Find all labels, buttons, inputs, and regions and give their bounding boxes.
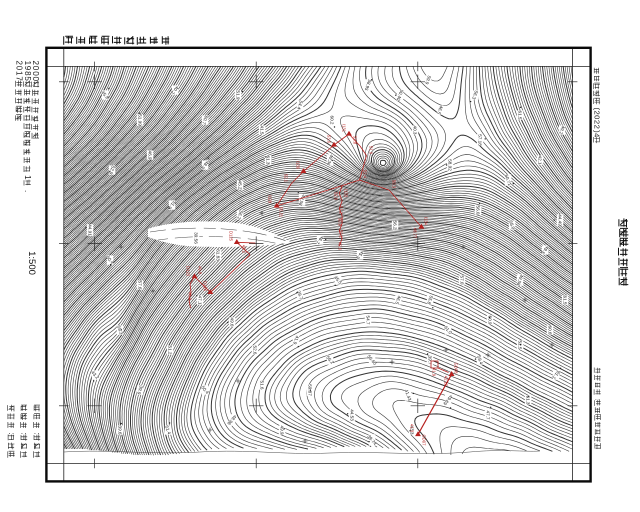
svg-text:61.83: 61.83 [216, 249, 221, 261]
svg-text:47.7: 47.7 [486, 411, 491, 420]
svg-text:49.6: 49.6 [230, 318, 235, 327]
svg-text::: : [20, 432, 29, 434]
svg-text:41.5: 41.5 [260, 126, 265, 135]
svg-text:4: 4 [593, 133, 602, 137]
svg-text:46.9: 46.9 [148, 151, 153, 160]
svg-text:42.1: 42.1 [538, 156, 543, 165]
svg-text:50.3: 50.3 [392, 180, 397, 189]
svg-text:51.2: 51.2 [168, 346, 173, 355]
svg-text:60.2: 60.2 [330, 116, 335, 125]
svg-text:GD07: GD07 [422, 435, 427, 447]
svg-text:I129: I129 [268, 195, 273, 204]
svg-text:49.9: 49.9 [280, 426, 285, 435]
svg-text:56.0: 56.0 [476, 206, 481, 215]
svg-text:0: 0 [15, 66, 24, 71]
svg-text:2: 2 [593, 125, 602, 129]
svg-text:42.15: 42.15 [444, 376, 449, 387]
svg-text:57.18: 57.18 [478, 134, 483, 146]
svg-text:52.1: 52.1 [284, 174, 289, 183]
svg-text::: : [33, 432, 42, 434]
svg-text:49.6: 49.6 [338, 242, 343, 251]
svg-text:51.99: 51.99 [138, 114, 143, 126]
svg-text:2: 2 [593, 120, 602, 124]
svg-text:49.8: 49.8 [198, 266, 203, 275]
svg-text:40.3: 40.3 [413, 126, 418, 135]
svg-text:51.9: 51.9 [236, 91, 241, 100]
svg-text:39.6: 39.6 [118, 426, 123, 435]
svg-text:52.5: 52.5 [518, 341, 523, 350]
svg-text:44.49: 44.49 [558, 214, 563, 226]
svg-text:50.8: 50.8 [338, 218, 343, 227]
svg-text:GD08: GD08 [454, 363, 459, 375]
svg-text:7: 7 [15, 76, 24, 81]
svg-text:51.9: 51.9 [369, 146, 374, 155]
svg-text:61.5: 61.5 [518, 111, 523, 120]
svg-text:D123: D123 [186, 266, 191, 277]
svg-text:55.21: 55.21 [279, 207, 284, 218]
svg-text:52.4: 52.4 [363, 170, 368, 179]
svg-text:41.9: 41.9 [432, 368, 437, 377]
svg-text:51.6: 51.6 [260, 381, 265, 390]
svg-text:I133: I133 [344, 189, 349, 198]
svg-text::: : [7, 432, 16, 434]
svg-text:41.3: 41.3 [410, 424, 415, 433]
svg-text:1: 1 [15, 71, 24, 76]
svg-text:60.6: 60.6 [548, 326, 553, 335]
svg-text:I130: I130 [296, 161, 301, 170]
svg-text:51.2: 51.2 [339, 206, 344, 215]
svg-text:53.6: 53.6 [327, 135, 332, 144]
svg-text:D124: D124 [203, 281, 208, 292]
svg-text:.: . [23, 190, 32, 192]
svg-text:48.77: 48.77 [413, 228, 418, 239]
svg-text:50.1: 50.1 [339, 230, 344, 239]
svg-text:52.0: 52.0 [334, 192, 339, 201]
svg-text:I134: I134 [424, 217, 429, 226]
svg-text:1: 1 [23, 175, 32, 180]
svg-text:48.9: 48.9 [188, 292, 193, 301]
svg-text:45.2: 45.2 [238, 181, 243, 190]
svg-text:44.91: 44.91 [88, 224, 93, 236]
svg-text:57.6: 57.6 [138, 281, 143, 290]
svg-text:D125: D125 [229, 231, 234, 242]
svg-text:52.6: 52.6 [253, 346, 258, 355]
svg-text:61.5: 61.5 [563, 296, 568, 305]
svg-text:58.92: 58.92 [448, 159, 453, 171]
svg-text:1:500: 1:500 [26, 251, 37, 275]
svg-text:44.53: 44.53 [350, 409, 355, 421]
svg-text:47.1: 47.1 [198, 296, 203, 305]
svg-text:39.7: 39.7 [428, 356, 433, 365]
svg-text:49.2: 49.2 [242, 245, 247, 254]
svg-text:0: 0 [593, 115, 602, 119]
svg-text:2: 2 [593, 110, 602, 114]
svg-text:54.7: 54.7 [366, 316, 371, 325]
svg-text:57.0: 57.0 [460, 276, 465, 285]
svg-text:52.8: 52.8 [353, 136, 358, 145]
svg-text:56.2: 56.2 [393, 221, 398, 230]
svg-text:39.56: 39.56 [194, 232, 199, 244]
svg-text:I131: I131 [342, 124, 347, 133]
